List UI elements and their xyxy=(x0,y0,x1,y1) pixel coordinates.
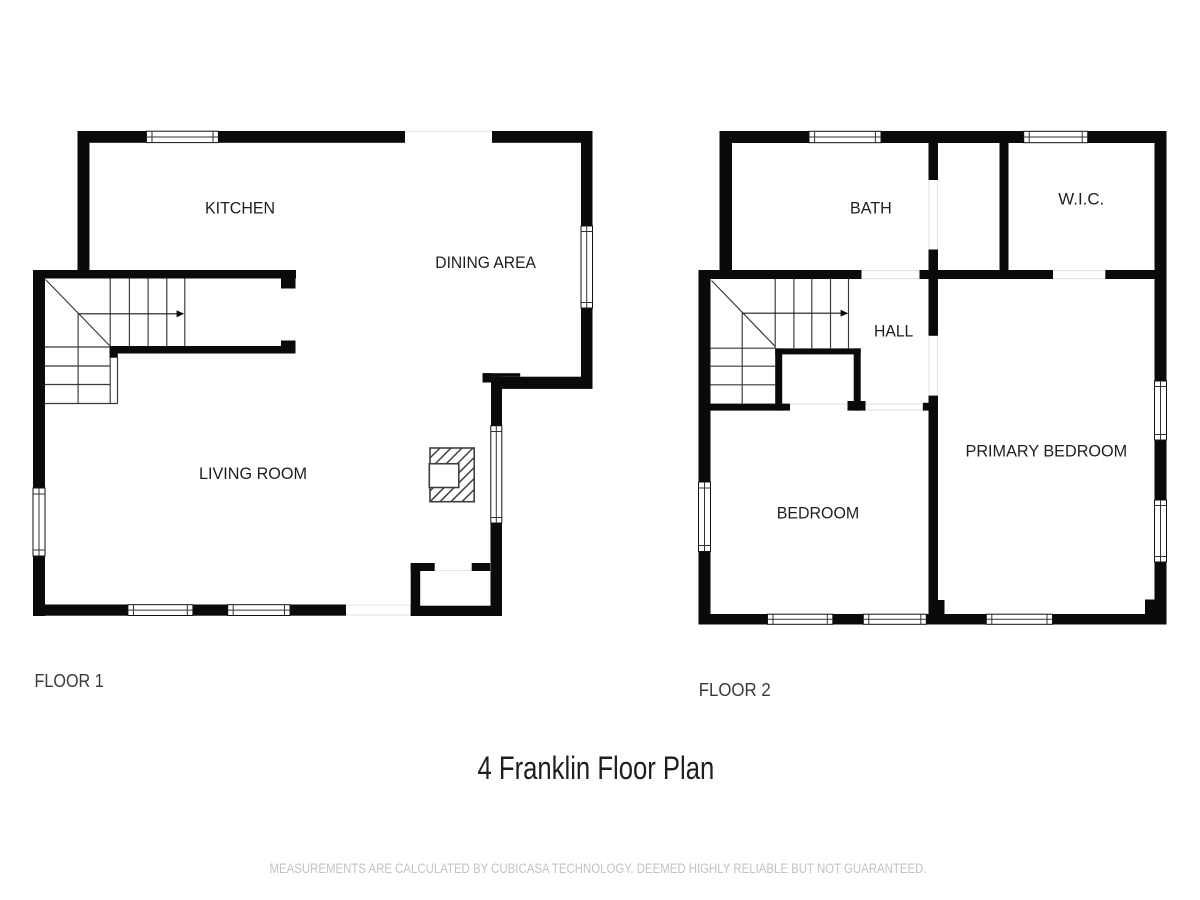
svg-text:4 Franklin Floor Plan: 4 Franklin Floor Plan xyxy=(478,750,715,786)
svg-text:BATH: BATH xyxy=(850,200,892,218)
svg-text:FLOOR 2: FLOOR 2 xyxy=(699,679,771,700)
svg-text:BEDROOM: BEDROOM xyxy=(777,504,860,522)
svg-text:W.I.C.: W.I.C. xyxy=(1058,190,1104,208)
svg-text:LIVING ROOM: LIVING ROOM xyxy=(199,465,307,483)
svg-text:FLOOR 1: FLOOR 1 xyxy=(35,670,104,691)
svg-text:PRIMARY BEDROOM: PRIMARY BEDROOM xyxy=(966,443,1128,461)
svg-text:MEASUREMENTS ARE CALCULATED BY: MEASUREMENTS ARE CALCULATED BY CUBICASA … xyxy=(270,861,927,876)
svg-text:HALL: HALL xyxy=(874,322,913,340)
svg-text:DINING AREA: DINING AREA xyxy=(435,254,536,272)
svg-text:KITCHEN: KITCHEN xyxy=(205,200,275,218)
